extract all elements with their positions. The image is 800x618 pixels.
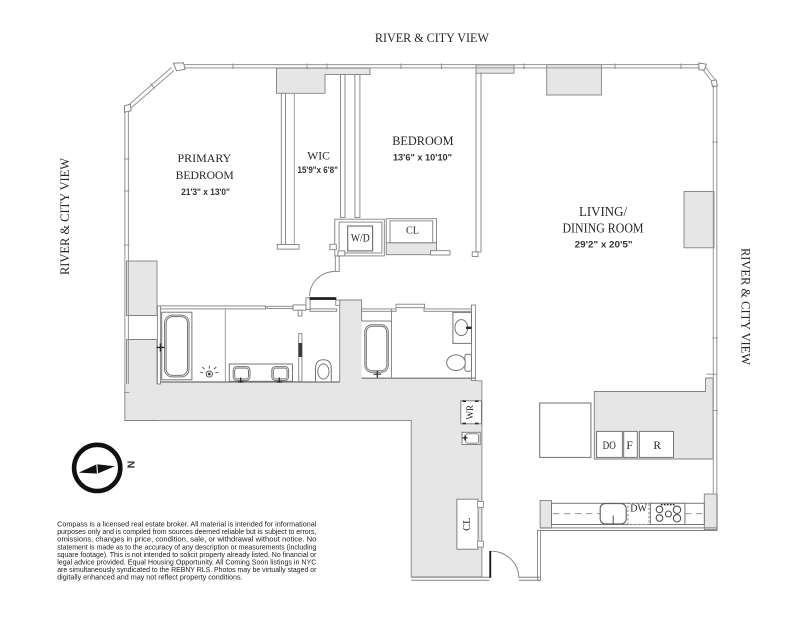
svg-text:digitally enhanced and may not: digitally enhanced and may not reflect p… xyxy=(57,573,242,582)
